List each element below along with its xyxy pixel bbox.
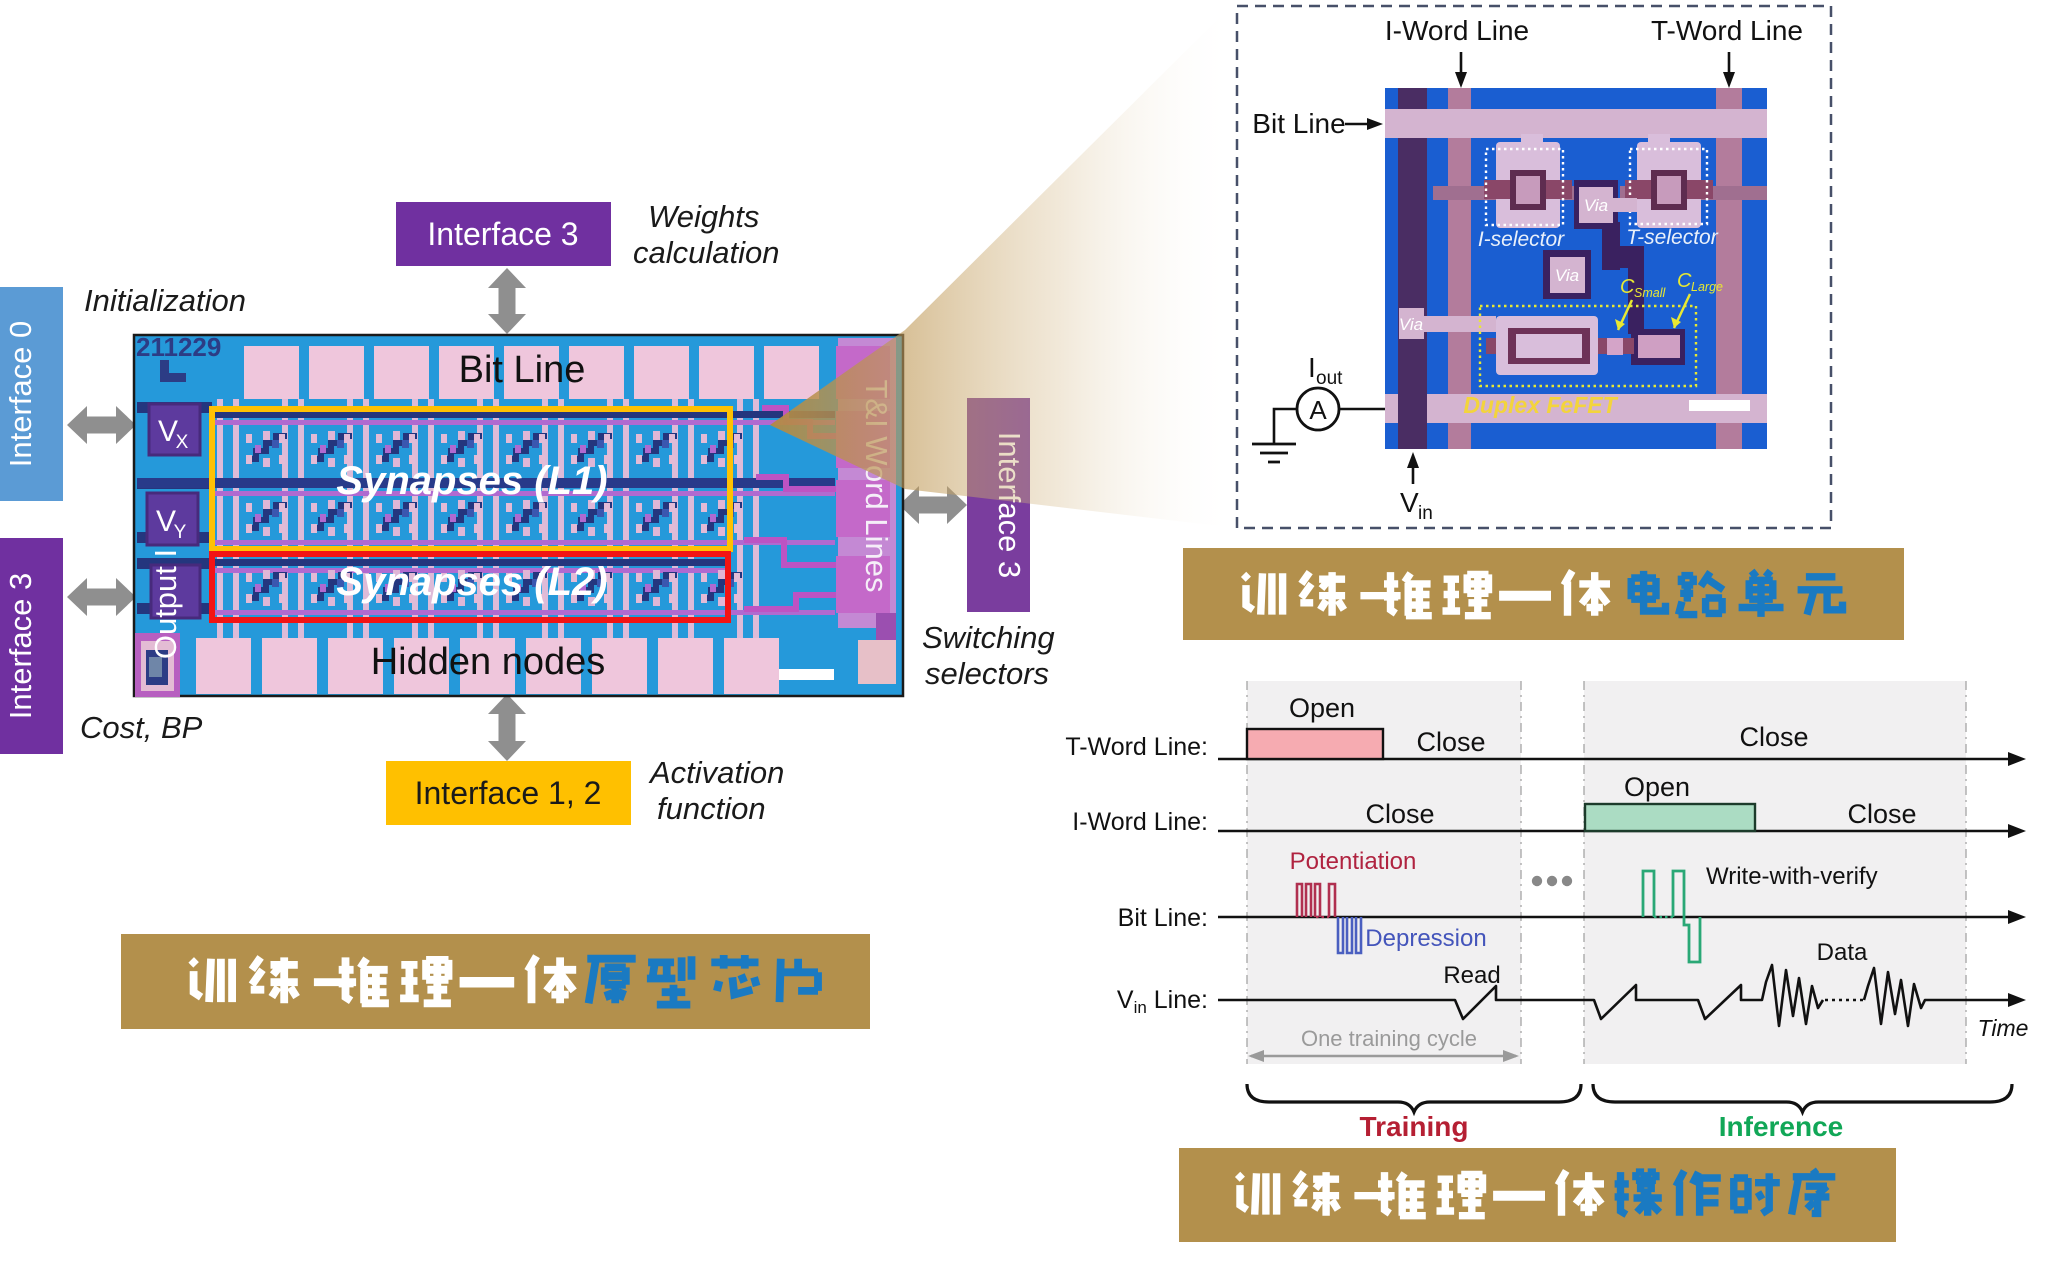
svg-text:in: in bbox=[1418, 503, 1433, 524]
svg-text:Via: Via bbox=[1555, 266, 1579, 285]
svg-text:Read: Read bbox=[1443, 962, 1500, 989]
svg-text:Hidden nodes: Hidden nodes bbox=[371, 641, 606, 683]
svg-text:Interface 3: Interface 3 bbox=[427, 216, 578, 252]
svg-text:Via: Via bbox=[1584, 196, 1608, 215]
svg-text:calculation: calculation bbox=[633, 235, 779, 270]
svg-text:T-Word Line:: T-Word Line: bbox=[1065, 733, 1208, 761]
svg-text:C: C bbox=[1620, 276, 1635, 298]
svg-text:I-selector: I-selector bbox=[1478, 228, 1565, 251]
svg-text:Bit Line: Bit Line bbox=[459, 349, 586, 391]
svg-text:Vin Line:: Vin Line: bbox=[1117, 986, 1208, 1017]
svg-text:Depression: Depression bbox=[1365, 925, 1486, 952]
svg-text:Via: Via bbox=[1399, 315, 1423, 334]
svg-text:T-selector: T-selector bbox=[1626, 226, 1718, 249]
svg-text:selectors: selectors bbox=[925, 656, 1049, 691]
svg-text:Bit Line:: Bit Line: bbox=[1118, 904, 1208, 932]
svg-text:Switching: Switching bbox=[922, 620, 1055, 655]
svg-text:Synapses (L1): Synapses (L1) bbox=[336, 459, 607, 503]
svg-text:Open: Open bbox=[1624, 772, 1690, 802]
svg-text:out: out bbox=[1316, 368, 1343, 389]
svg-text:T-Word Line: T-Word Line bbox=[1651, 15, 1803, 46]
svg-text:Activation: Activation bbox=[648, 755, 784, 790]
svg-text:Interface 0: Interface 0 bbox=[3, 321, 38, 467]
svg-text:Potentiation: Potentiation bbox=[1290, 848, 1417, 875]
svg-text:Data: Data bbox=[1817, 939, 1868, 966]
svg-text:Close: Close bbox=[1739, 722, 1808, 752]
svg-text:Output I: Output I bbox=[148, 549, 183, 659]
svg-text:Synapses (L2): Synapses (L2) bbox=[336, 560, 607, 604]
svg-text:Weights: Weights bbox=[648, 199, 759, 234]
svg-text:Time: Time bbox=[1978, 1015, 2029, 1041]
svg-text:Cost, BP: Cost, BP bbox=[80, 710, 203, 745]
svg-text:Bit Line: Bit Line bbox=[1252, 108, 1345, 139]
svg-text:211229: 211229 bbox=[136, 332, 221, 362]
svg-text:Write-with-verify: Write-with-verify bbox=[1706, 863, 1878, 890]
svg-text:Duplex FeFET: Duplex FeFET bbox=[1463, 392, 1618, 418]
svg-text:C: C bbox=[1677, 270, 1692, 292]
svg-text:A: A bbox=[1309, 395, 1327, 425]
svg-text:One training cycle: One training cycle bbox=[1301, 1026, 1477, 1051]
svg-text:I-Word Line:: I-Word Line: bbox=[1072, 808, 1208, 836]
svg-text:Initialization: Initialization bbox=[84, 283, 246, 318]
svg-text:Large: Large bbox=[1691, 280, 1723, 294]
svg-text:Close: Close bbox=[1416, 727, 1485, 757]
svg-text:Close: Close bbox=[1365, 799, 1434, 829]
svg-text:Small: Small bbox=[1634, 286, 1666, 300]
svg-text:Inference: Inference bbox=[1719, 1111, 1844, 1142]
svg-text:Close: Close bbox=[1847, 799, 1916, 829]
svg-text:I-Word Line: I-Word Line bbox=[1385, 15, 1529, 46]
svg-text:Interface 1, 2: Interface 1, 2 bbox=[415, 775, 602, 811]
svg-text:Interface 3: Interface 3 bbox=[3, 573, 38, 719]
svg-text:Training: Training bbox=[1360, 1111, 1469, 1142]
svg-text:function: function bbox=[657, 791, 766, 826]
svg-text:Open: Open bbox=[1289, 693, 1355, 723]
svg-text:X: X bbox=[176, 432, 189, 453]
svg-text:V: V bbox=[1400, 487, 1419, 518]
svg-text:I: I bbox=[1308, 352, 1316, 383]
svg-text:Y: Y bbox=[174, 522, 187, 543]
